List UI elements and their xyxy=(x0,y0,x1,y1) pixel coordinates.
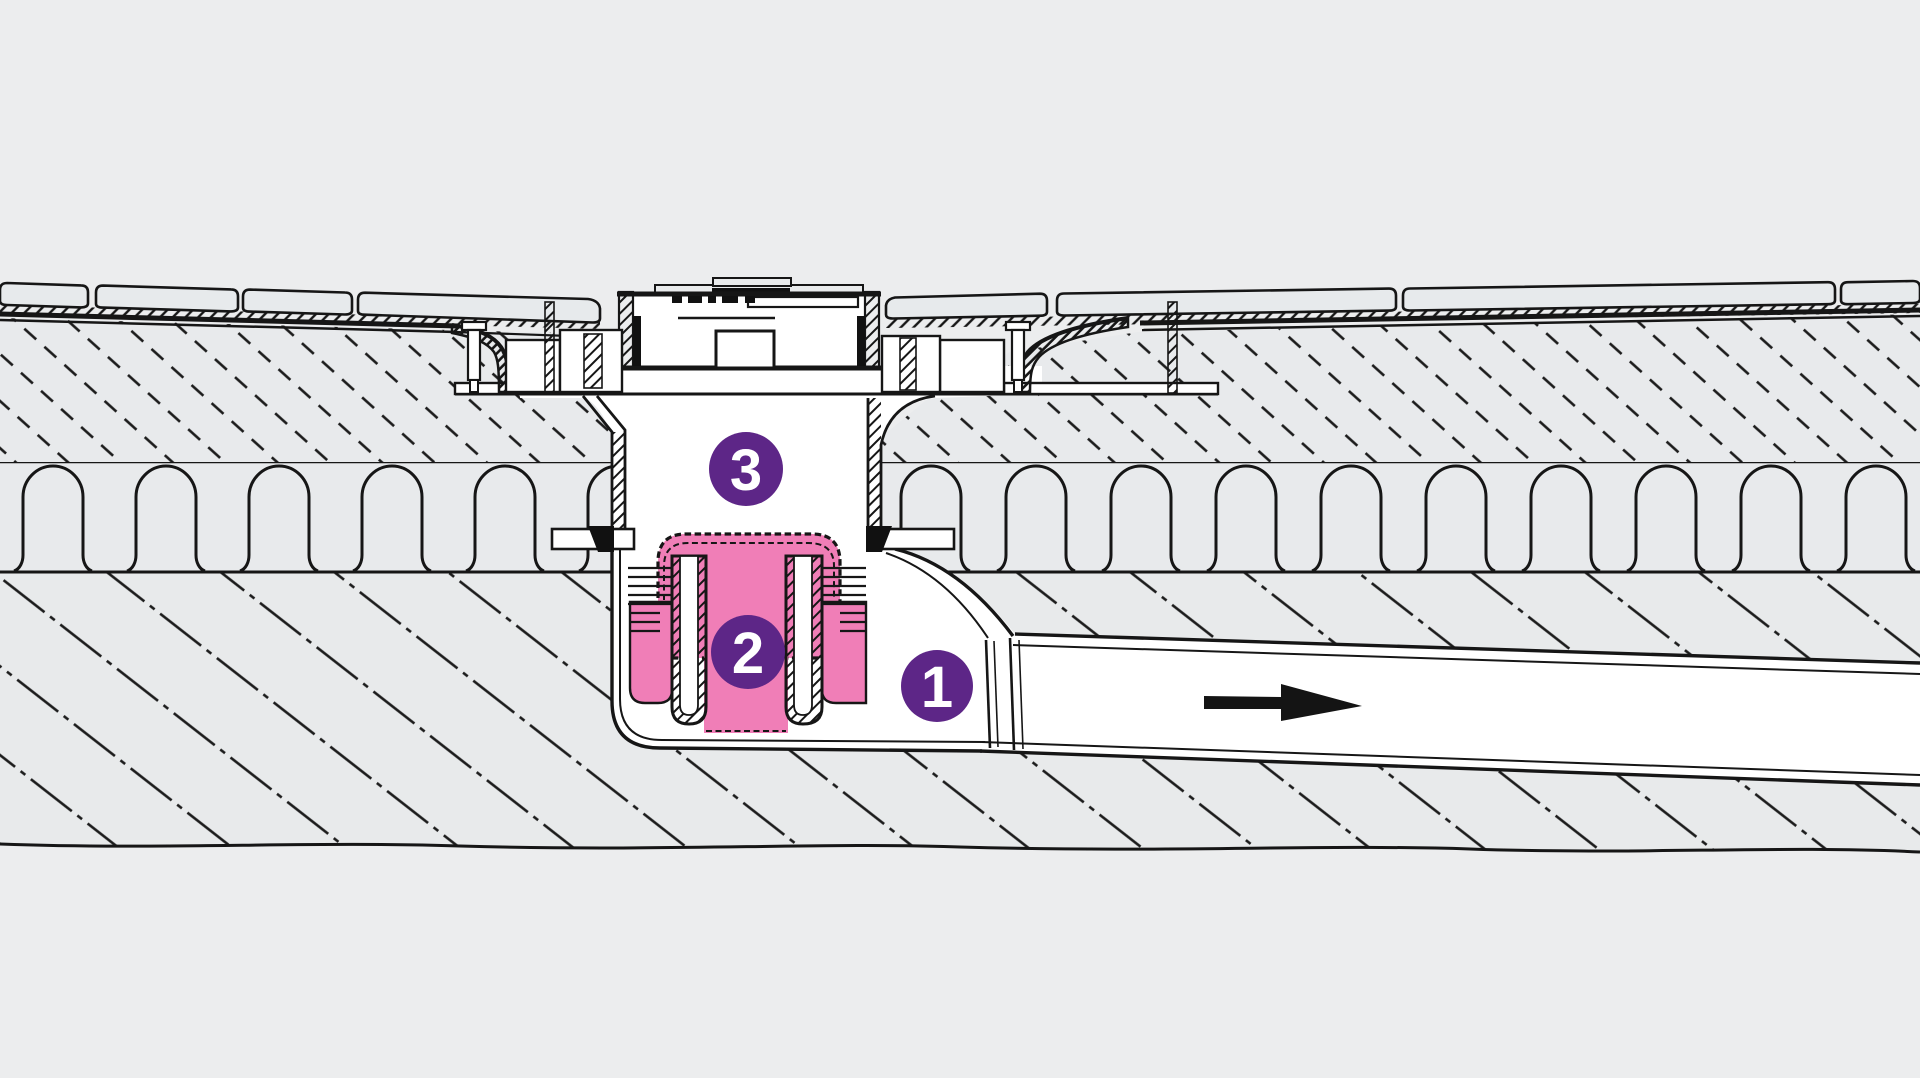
svg-text:1: 1 xyxy=(921,655,953,720)
svg-text:2: 2 xyxy=(732,621,764,686)
svg-text:3: 3 xyxy=(730,438,762,503)
